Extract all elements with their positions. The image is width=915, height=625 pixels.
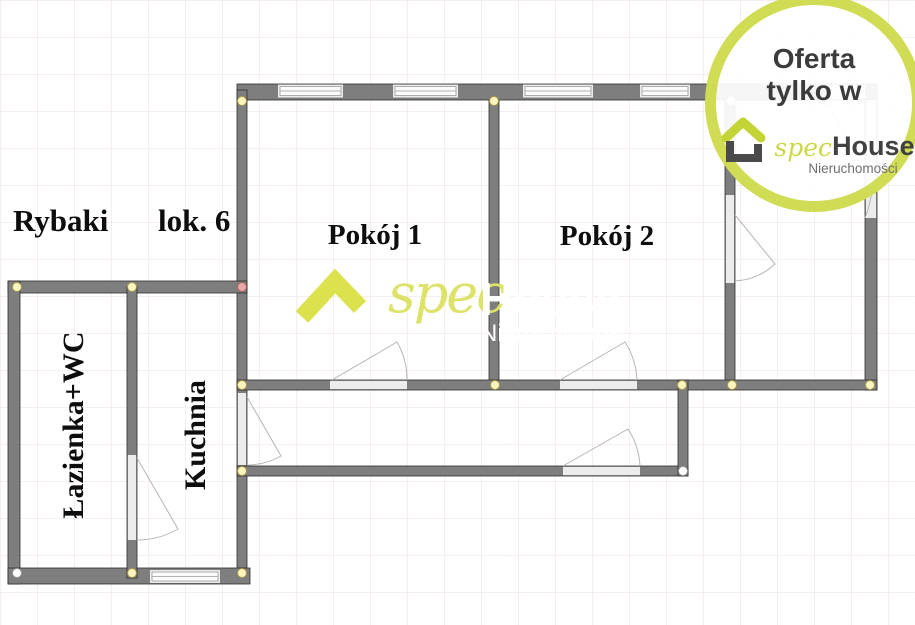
wall-block-left (8, 281, 20, 584)
door-swing (247, 397, 281, 465)
window-symbol (523, 85, 593, 98)
offer-badge: Oferta tylko w specHouse Nieruchomości (705, 0, 915, 212)
window-symbol (278, 85, 343, 98)
window-symbol (640, 85, 690, 98)
wall-node (13, 283, 22, 292)
wall-node (678, 381, 687, 390)
wall-node (238, 97, 247, 106)
floor-plan-page: spec House Nieruchomości Rybaki lok. 6 P… (0, 0, 915, 625)
room-label-lazienka: Łazienka+WC (56, 310, 92, 540)
wall-node (238, 569, 247, 578)
room-label-pokoj-1: Pokój 1 (295, 219, 455, 252)
window-symbol (393, 85, 458, 98)
door-swing (137, 458, 178, 540)
brand-logo: specHouse (719, 116, 914, 160)
brand-spec-text: spec (774, 135, 832, 160)
wall-node (490, 97, 499, 106)
house-logo-icon (719, 116, 769, 164)
wall-room-divider (489, 100, 499, 385)
wall-node (491, 381, 500, 390)
room-label-kuchnia: Kuchnia (178, 350, 214, 520)
door-swing (560, 342, 637, 380)
address-label: Rybaki (13, 203, 108, 239)
windows (150, 85, 690, 584)
wall-node-pink (238, 283, 247, 292)
badge-line-2: tylko w (767, 75, 862, 107)
badge-line-1: Oferta (773, 43, 855, 75)
door-swing (332, 342, 407, 380)
wall-node (238, 467, 247, 476)
window-symbol (150, 570, 220, 583)
wall-corridor-right (678, 380, 688, 476)
wall-node (866, 381, 875, 390)
unit-label: lok. 6 (158, 203, 230, 239)
wall-left-of-rooms (237, 90, 247, 583)
wall-node (238, 381, 247, 390)
room-label-pokoj-2: Pokój 2 (527, 220, 687, 253)
wall-node (128, 283, 137, 292)
wall-node (128, 569, 137, 578)
door-swing (563, 429, 640, 466)
brand-house-text: House (832, 133, 915, 160)
wall-node (13, 569, 22, 578)
wall-node (728, 381, 737, 390)
wall-node (679, 467, 688, 476)
brand-subtitle: Nieruchomości (808, 161, 897, 176)
door-swing (735, 215, 775, 281)
